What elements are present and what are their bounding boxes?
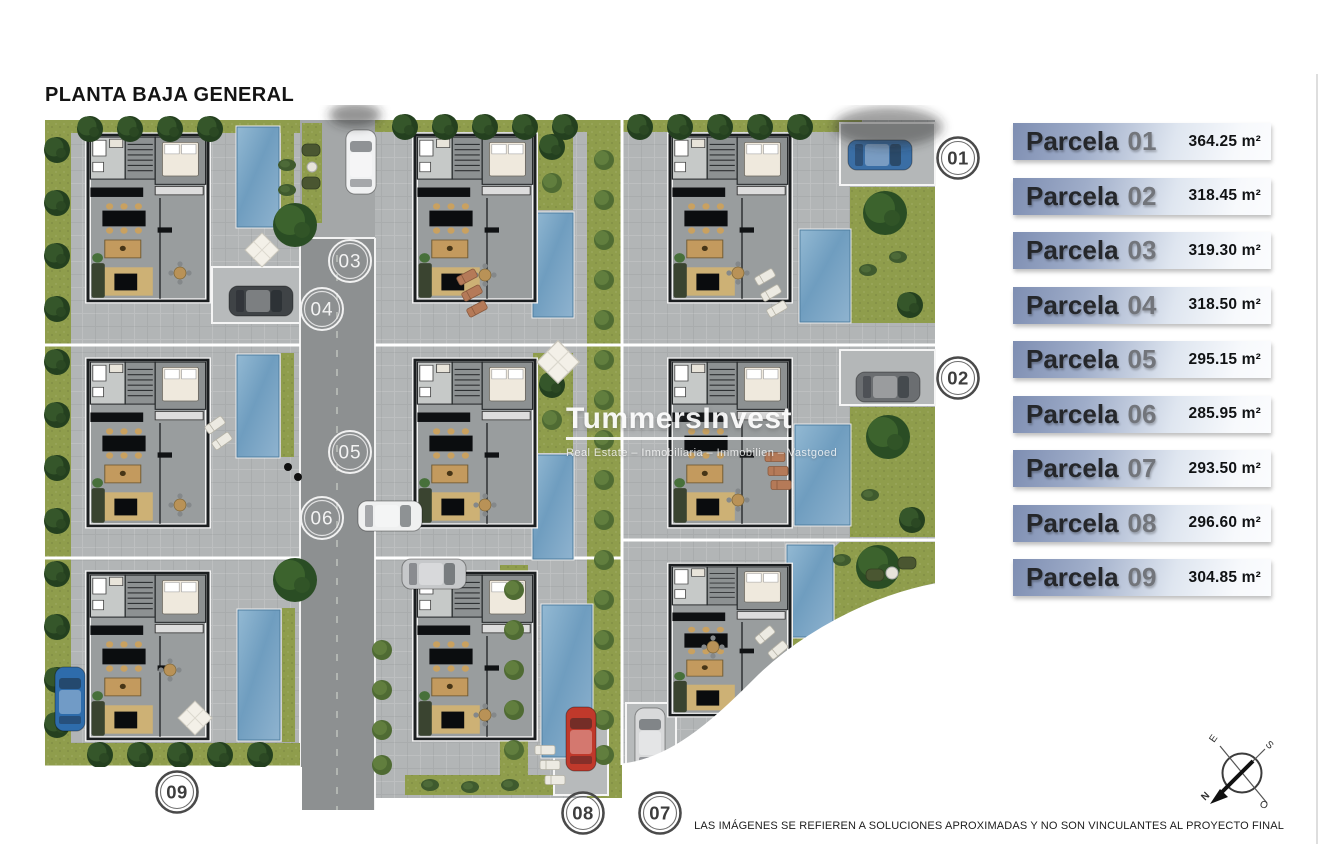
- legend-area: 319.30 m²: [1189, 242, 1261, 260]
- house: [88, 135, 208, 301]
- legend-area: 296.60 m²: [1189, 514, 1261, 532]
- right-edge-line: [1316, 74, 1318, 844]
- legend-item-04: Parcela 04 318.50 m²: [1013, 287, 1271, 324]
- legend-item-06: Parcela 06 285.95 m²: [1013, 396, 1271, 433]
- legend-label: Parcela: [1026, 453, 1119, 484]
- site-plan: 03 04 05 06 01 02 07 08: [30, 105, 1000, 840]
- legend-item-01: Parcela 01 364.25 m²: [1013, 123, 1271, 160]
- legend-item-09: Parcela 09 304.85 m²: [1013, 559, 1271, 596]
- pool: [533, 213, 573, 317]
- legend-label: Parcela: [1026, 562, 1119, 593]
- car-blue: [55, 667, 85, 731]
- pool: [237, 127, 279, 227]
- legend-area: 364.25 m²: [1189, 133, 1261, 151]
- legend-item-05: Parcela 05 295.15 m²: [1013, 341, 1271, 378]
- legend-item-07: Parcela 07 293.50 m²: [1013, 450, 1271, 487]
- compass-east-label: E: [1207, 733, 1220, 745]
- legend-number: 01: [1128, 126, 1157, 157]
- legend-label: Parcela: [1026, 235, 1119, 266]
- legend-label: Parcela: [1026, 399, 1119, 430]
- car-dark: [229, 286, 293, 316]
- legend-area: 293.50 m²: [1189, 460, 1261, 478]
- legend-number: 08: [1128, 508, 1157, 539]
- pool: [238, 610, 280, 740]
- parcel-legend: Parcela 01 364.25 m² Parcela 02 318.45 m…: [1013, 123, 1271, 614]
- svg-text:04: 04: [310, 300, 333, 321]
- legend-area: 285.95 m²: [1189, 405, 1261, 423]
- svg-text:03: 03: [338, 252, 361, 273]
- house: [88, 360, 208, 526]
- legend-item-08: Parcela 08 296.60 m²: [1013, 505, 1271, 542]
- legend-label: Parcela: [1026, 508, 1119, 539]
- legend-item-03: Parcela 03 319.30 m²: [1013, 232, 1271, 269]
- svg-text:07: 07: [649, 803, 671, 824]
- svg-text:08: 08: [572, 803, 594, 824]
- svg-text:05: 05: [338, 443, 361, 464]
- houses: [88, 135, 790, 739]
- plot-marker-02: 02: [938, 358, 979, 399]
- legend-number: 09: [1128, 562, 1157, 593]
- pool: [800, 230, 850, 322]
- pool: [533, 455, 573, 559]
- legend-number: 03: [1128, 235, 1157, 266]
- legend-area: 318.45 m²: [1189, 187, 1261, 205]
- svg-text:02: 02: [947, 368, 969, 389]
- pool: [237, 355, 279, 457]
- compass-rose: E S N O: [1197, 727, 1289, 819]
- svg-text:06: 06: [310, 509, 333, 530]
- compass-north-label: N: [1199, 790, 1212, 803]
- pool: [795, 425, 850, 525]
- page: PLANTA BAJA GENERAL: [0, 0, 1320, 859]
- legend-label: Parcela: [1026, 181, 1119, 212]
- legend-number: 07: [1128, 453, 1157, 484]
- legend-number: 04: [1128, 290, 1157, 321]
- car-silver: [402, 559, 466, 589]
- compass-south-label: S: [1263, 739, 1276, 752]
- legend-number: 05: [1128, 344, 1157, 375]
- legend-area: 295.15 m²: [1189, 351, 1261, 369]
- legend-area: 304.85 m²: [1189, 569, 1261, 587]
- plot-marker-01: 01: [938, 138, 979, 179]
- legend-label: Parcela: [1026, 126, 1119, 157]
- pool: [787, 545, 833, 637]
- legend-number: 02: [1128, 181, 1157, 212]
- legend-area: 318.50 m²: [1189, 296, 1261, 314]
- page-title: PLANTA BAJA GENERAL: [45, 84, 294, 107]
- house: [415, 360, 535, 526]
- disclaimer-text: LAS IMÁGENES SE REFIEREN A SOLUCIONES AP…: [694, 820, 1284, 832]
- svg-text:09: 09: [166, 782, 188, 803]
- car-white: [346, 130, 376, 194]
- car-gray: [856, 372, 920, 402]
- legend-label: Parcela: [1026, 344, 1119, 375]
- legend-item-02: Parcela 02 318.45 m²: [1013, 178, 1271, 215]
- legend-number: 06: [1128, 399, 1157, 430]
- svg-text:01: 01: [947, 148, 969, 169]
- car-red: [566, 707, 596, 771]
- compass-west-label: O: [1258, 799, 1270, 812]
- car-white: [358, 501, 422, 531]
- legend-label: Parcela: [1026, 290, 1119, 321]
